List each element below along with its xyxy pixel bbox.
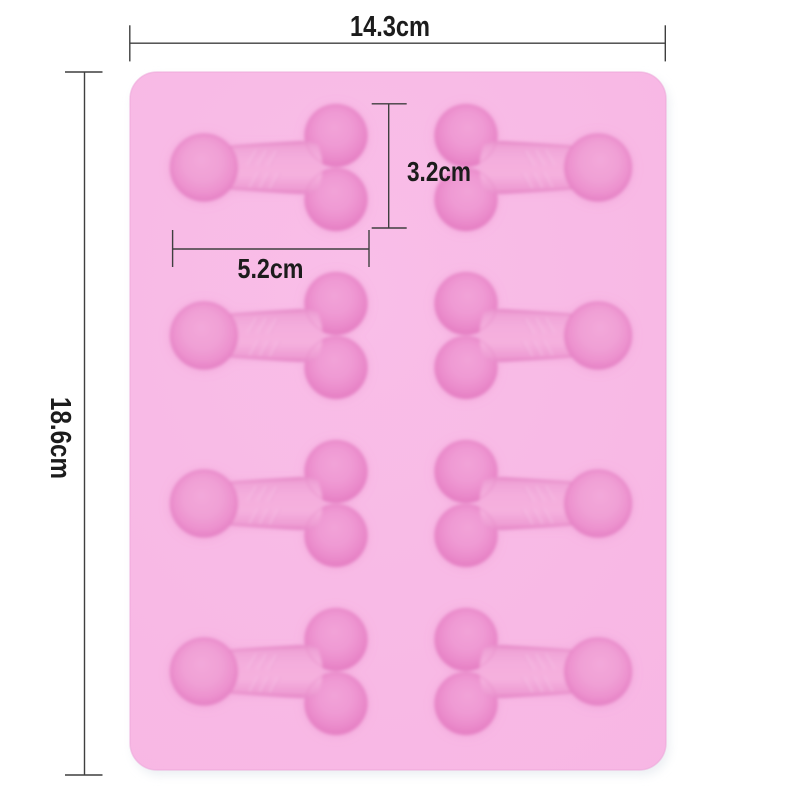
- svg-text:5.2cm: 5.2cm: [238, 253, 304, 284]
- svg-text:3.2cm: 3.2cm: [407, 156, 471, 187]
- svg-text:18.6cm: 18.6cm: [44, 397, 76, 479]
- svg-text:14.3cm: 14.3cm: [350, 11, 430, 43]
